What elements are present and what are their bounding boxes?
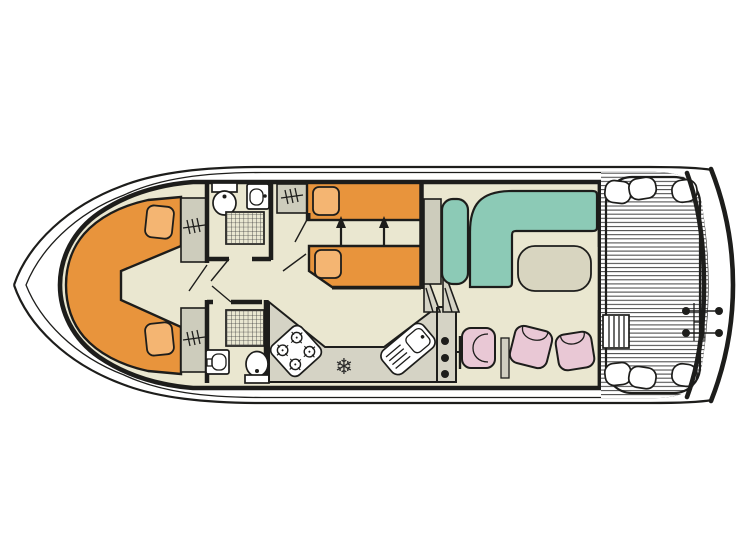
deck-steps-icon (603, 315, 629, 348)
saloon-table (518, 246, 591, 291)
helm-console-controls (441, 337, 449, 378)
toilet-icon (212, 183, 237, 215)
boat-floor-plan: ❄ (0, 0, 747, 560)
bed-pillow-top (313, 187, 339, 215)
fridge-icon: ❄ (335, 355, 353, 380)
folding-chair (554, 330, 595, 371)
saloon-cabinet (424, 199, 441, 284)
washbasin-icon (247, 184, 269, 209)
deck-cushion (604, 179, 632, 204)
toilet-icon (245, 352, 269, 384)
boat-floor-plan-page: ❄ (0, 0, 747, 560)
bow-pillow-top (144, 205, 174, 240)
bed-pillow-bottom (315, 250, 341, 278)
shower-icon (226, 310, 264, 346)
bow-wardrobe-bottom (181, 308, 207, 372)
bench-sofa (442, 199, 468, 284)
saloon-partition (501, 338, 509, 378)
deck-cushion (627, 365, 657, 390)
bow-pillow-bottom (144, 322, 174, 357)
deck-cushion (604, 361, 632, 386)
deck-cushion (628, 176, 658, 201)
stern-outer-edge (711, 169, 733, 401)
folding-chair (508, 324, 554, 370)
bow-wardrobe-top (181, 198, 207, 262)
mid-wardrobe (277, 184, 308, 213)
helm-seat (462, 328, 495, 368)
shower-icon (226, 212, 264, 244)
aft-deck (601, 172, 708, 398)
washbasin-icon (206, 350, 229, 374)
